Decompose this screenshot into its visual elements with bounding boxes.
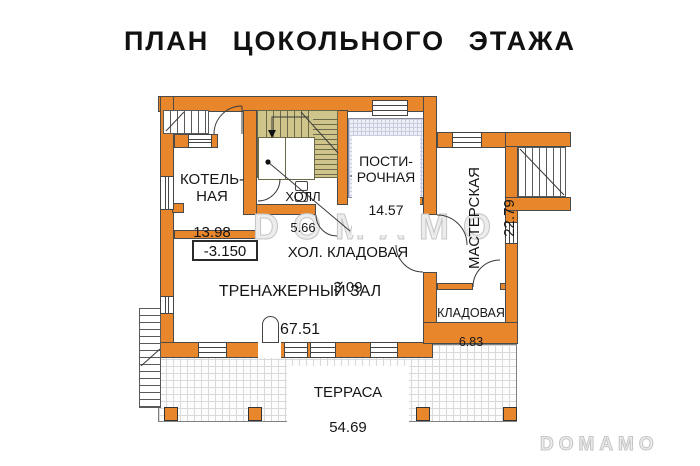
terrace-post bbox=[248, 407, 262, 421]
storage-name: КЛАДОВАЯ bbox=[436, 306, 506, 321]
label-terrace: ТЕРРАСА 54.69 bbox=[287, 366, 409, 454]
laundry-name: ПОСТИ- РОЧНАЯ bbox=[352, 153, 420, 186]
workshop-name: МАСТЕРСКАЯ bbox=[466, 148, 484, 288]
wall-stair-right bbox=[337, 110, 348, 205]
label-gym: ТРЕНАЖЕРНЫЙ ЗАЛ 67.51 bbox=[198, 264, 402, 358]
window-gym-left bbox=[160, 296, 174, 314]
terrace-post bbox=[416, 407, 430, 421]
floor-plan-canvas: ПЛАН ЦОКОЛЬНОГО ЭТАЖА bbox=[0, 0, 700, 466]
storage-area: 6.83 bbox=[436, 335, 506, 350]
label-storage: КЛАДОВАЯ 6.83 bbox=[436, 291, 506, 365]
exterior-stair-left bbox=[139, 308, 161, 408]
terrace-post bbox=[164, 407, 178, 421]
wall-laundry-right bbox=[423, 96, 437, 215]
window-laundry-top bbox=[372, 100, 408, 116]
elevation-mark: -3.150 bbox=[192, 240, 258, 261]
label-laundry: ПОСТИ- РОЧНАЯ 14.57 bbox=[352, 136, 420, 235]
workshop-area: 22.79 bbox=[501, 148, 519, 288]
gym-area: 67.51 bbox=[198, 321, 402, 340]
label-workshop: МАСТЕРСКАЯ 22.79 bbox=[448, 148, 492, 288]
stair-treads-lower bbox=[313, 115, 338, 178]
gym-name: ТРЕНАЖЕРНЫЙ ЗАЛ bbox=[198, 283, 402, 302]
wall-ext-stair-top-bar bbox=[505, 132, 571, 147]
laundry-area: 14.57 bbox=[352, 202, 420, 219]
terrace-area: 54.69 bbox=[287, 419, 409, 437]
watermark-corner: DOMAMO bbox=[540, 434, 659, 456]
hall-name: ХОЛЛ bbox=[274, 189, 332, 204]
central-staircase bbox=[257, 110, 338, 178]
boiler-name: КОТЕЛЬ- НАЯ bbox=[168, 171, 256, 206]
page-title: ПЛАН ЦОКОЛЬНОГО ЭТАЖА bbox=[0, 26, 700, 57]
cold-pantry-name: ХОЛ. КЛАДОВАЯ bbox=[278, 244, 418, 262]
window-boiler-top bbox=[188, 134, 212, 148]
boiler-area: 13.98 bbox=[168, 224, 256, 242]
stair-treads-upper bbox=[260, 111, 313, 137]
entry-stair-top-left bbox=[163, 110, 209, 134]
terrace-post bbox=[503, 407, 517, 421]
window-workshop-top bbox=[452, 132, 482, 148]
terrace-name: ТЕРРАСА bbox=[287, 384, 409, 402]
